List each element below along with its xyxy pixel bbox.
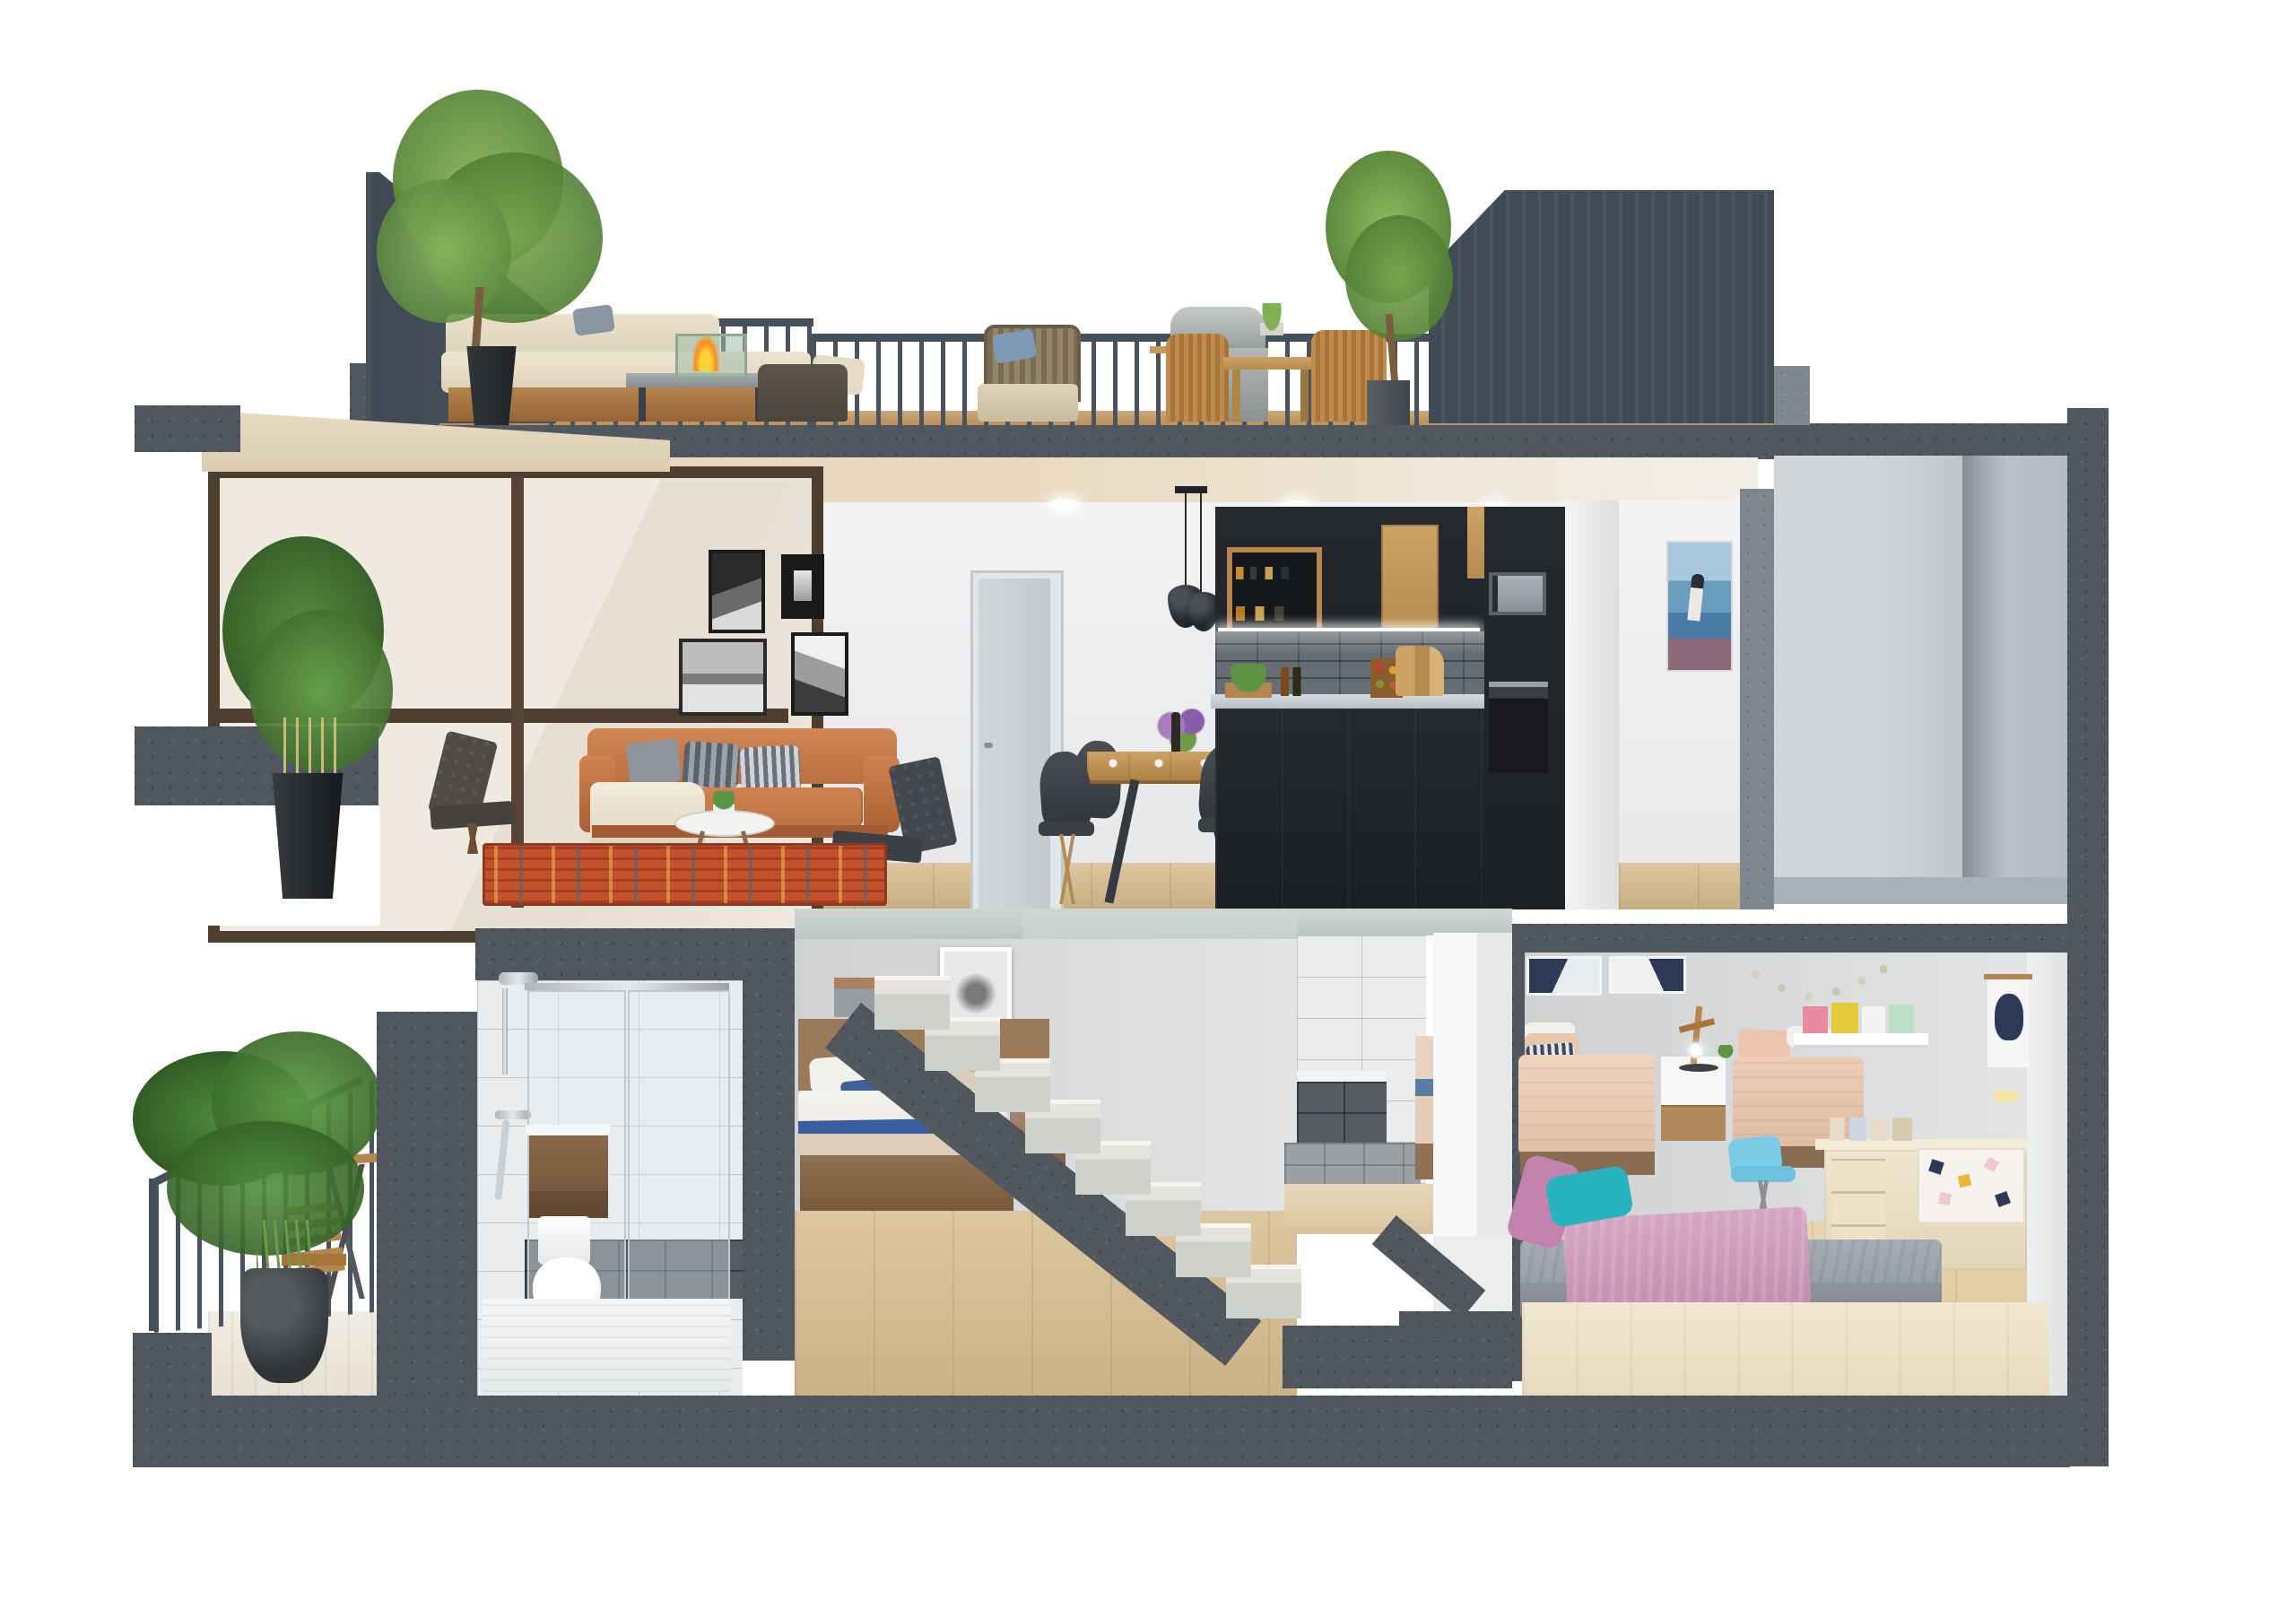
stair-bottom-mass [1283,1326,1512,1388]
roof-dining-table-top [1223,357,1320,370]
shelf-jars-bottom [1236,606,1300,621]
dining-chair-front-left-legs [1044,834,1091,904]
roof-dining-table-leg-r [1300,370,1309,422]
shaft-floor [1774,877,2070,904]
interior-door-leaf [978,578,1050,918]
kitchen-oil-bottles [1281,667,1308,696]
shower-riser-bar [502,988,508,1074]
kids-nightstand-plant [1718,1045,1734,1061]
white-pillar [1565,500,1619,909]
sofa-pillow-gray [626,738,683,787]
door-handle [984,743,993,748]
roof-tree-left-canopy-c [377,179,511,323]
shower-glass-top-rail [525,983,729,990]
outdoor-sofa-pillow-blue [572,304,615,336]
bath2-tub-front [1297,1082,1387,1144]
kids-bedA-duvet [1518,1055,1655,1155]
foundation-slab [133,1396,2070,1467]
stair-step-1 [874,976,950,1030]
balcony-bathroom-column [377,1012,477,1440]
slab-over-kids-room [1512,924,2068,953]
shaft-left-post [1740,489,1774,909]
fire-table-leg-left [639,387,646,422]
terrace-railing-end-post [1774,366,1810,425]
right-outer-column [2067,408,2109,1466]
kids-book-4 [1889,1005,1914,1035]
platform-bed-base [1522,1302,2049,1403]
shelf-jars-top [1236,567,1300,579]
art-frame-road [679,639,767,716]
box-triangle-4 [1938,1192,1952,1205]
balcony-railing-post [149,1179,157,1331]
shaft-interior [1774,456,2070,904]
box-triangle-2 [1958,1174,1971,1187]
kitchen-open-shelf [1227,547,1322,639]
art-frame-portrait-1 [709,550,765,633]
bath2-tub-rim [1297,1071,1387,1082]
roof-tree-right-planter [1367,380,1410,425]
kids-house-figurines [1830,1118,1912,1141]
star-garland [1747,961,1891,1005]
roof-dining-table-leg-l [1232,370,1240,422]
pendant-mount [1175,486,1207,493]
kids-book-2 [1831,1003,1858,1035]
shower-tray [482,1299,731,1392]
kids-shelf [1794,1033,1928,1045]
pendant-cord-2 [1200,491,1202,596]
apartment-cutaway-render [0,0,2296,1618]
bath-bedroom-partition [743,980,795,1361]
slab-over-bath2 [1297,909,1512,935]
terrace-armchair-dark [758,364,848,422]
roof-tree-right-canopy-b [1345,215,1453,341]
kids-book-3 [1862,1006,1885,1035]
bamboo-stems [283,718,337,780]
shaft-inner-corner [1962,456,2005,904]
bath2-floor [1284,1143,1421,1187]
kitchen-microwave [1489,572,1546,615]
kitchen-cutting-boards [1396,646,1444,696]
bamboo-planter [271,773,344,899]
coffee-table-plant [713,791,735,814]
fire-flame [692,335,719,371]
terrace-railing-right-panel [1429,190,1774,423]
kids-print-2 [1609,956,1686,994]
art-frame-portrait-2 [791,632,848,716]
roof-dining-chair-left [1166,334,1229,422]
art-frame-small-inner [794,570,812,601]
kids-poster-cat [1995,994,2023,1040]
dining-wine-bottle [1171,712,1180,752]
recessed-light-3 [1049,499,1080,509]
bath2-floor-beige [1284,1184,1437,1234]
kitchen-oven [1489,682,1548,773]
vanity-counter [526,1125,610,1135]
palm-stems [257,1220,310,1275]
vanity-cabinet [529,1135,608,1218]
pendant-cord-1 [1185,491,1187,592]
kids-bedB-pillow-peach [1737,1029,1791,1060]
dining-centerpiece-flowers [1153,709,1213,752]
terrace-armchair-rattan-seat [978,384,1078,422]
hallway-floor [1619,863,1744,909]
kitchen-wood-cabinet-a [1381,525,1439,631]
shower-mixer [495,1110,531,1119]
kids-wall-decal [1993,1090,2020,1102]
palm-pot [240,1268,328,1383]
bay-mask-below [133,805,380,926]
bay-roof-edge [135,405,240,452]
kids-book-1 [1803,1006,1828,1035]
persian-rug [483,843,887,906]
kitchen-basil-crate [1225,664,1272,698]
kitchen-base-cabinets [1215,709,1484,909]
kids-lamp-base [1679,1064,1718,1072]
kids-print-1 [1526,956,1602,996]
roof-table-plant [1260,303,1283,335]
master-art-frame [940,947,1012,1026]
kids-desk-lamp-bulb [1688,1042,1704,1058]
